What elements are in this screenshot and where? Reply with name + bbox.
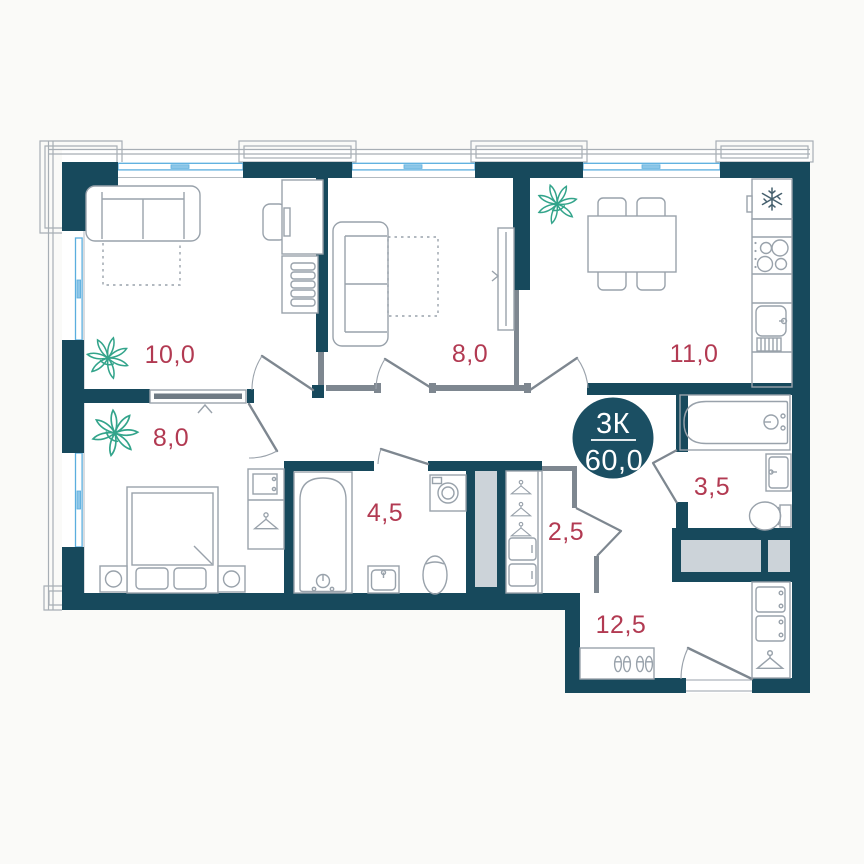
floor-plan-svg: 10,0 8,0 11,0 8,0 4,5 2,5 3,5 12,5 3К 60…: [0, 0, 864, 864]
room-label-bathroom-main: 4,5: [367, 499, 403, 527]
sofa-icon: [86, 186, 200, 241]
wardrobe-icon: [248, 469, 284, 549]
room-label-living: 10,0: [145, 341, 196, 369]
sink-icon: [368, 566, 399, 593]
hall-wardrobe-icon: [752, 582, 790, 678]
desk-icon: [282, 180, 323, 254]
washing-machine-icon: [430, 475, 466, 511]
room-label-second: 8,0: [452, 340, 488, 368]
room-label-bedroom: 8,0: [153, 424, 189, 452]
room-label-hallway: 12,5: [596, 611, 647, 639]
sofa-icon: [333, 222, 388, 346]
shelf-icon: [282, 256, 318, 313]
toilet-icon: [750, 502, 792, 530]
room-label-bathroom-small: 3,5: [694, 473, 730, 501]
bed-icon: [127, 487, 218, 593]
fridge-icon: [747, 179, 792, 219]
floorplan-canvas: 10,0 8,0 11,0 8,0 4,5 2,5 3,5 12,5 3К 60…: [0, 0, 864, 864]
badge-area-label: 60,0: [585, 445, 643, 477]
wardrobe-room-furniture: [506, 471, 542, 593]
shoe-cabinet-icon: [580, 648, 654, 679]
sink-icon: [766, 454, 791, 491]
wardrobe-icon: [506, 471, 542, 593]
badge-rooms-label: 3К: [596, 408, 630, 440]
dining-table-icon: [588, 216, 676, 272]
apartment-badge: 3К 60,0: [573, 398, 654, 479]
room-label-wardrobe: 2,5: [548, 518, 584, 546]
room-label-kitchen: 11,0: [670, 340, 719, 368]
